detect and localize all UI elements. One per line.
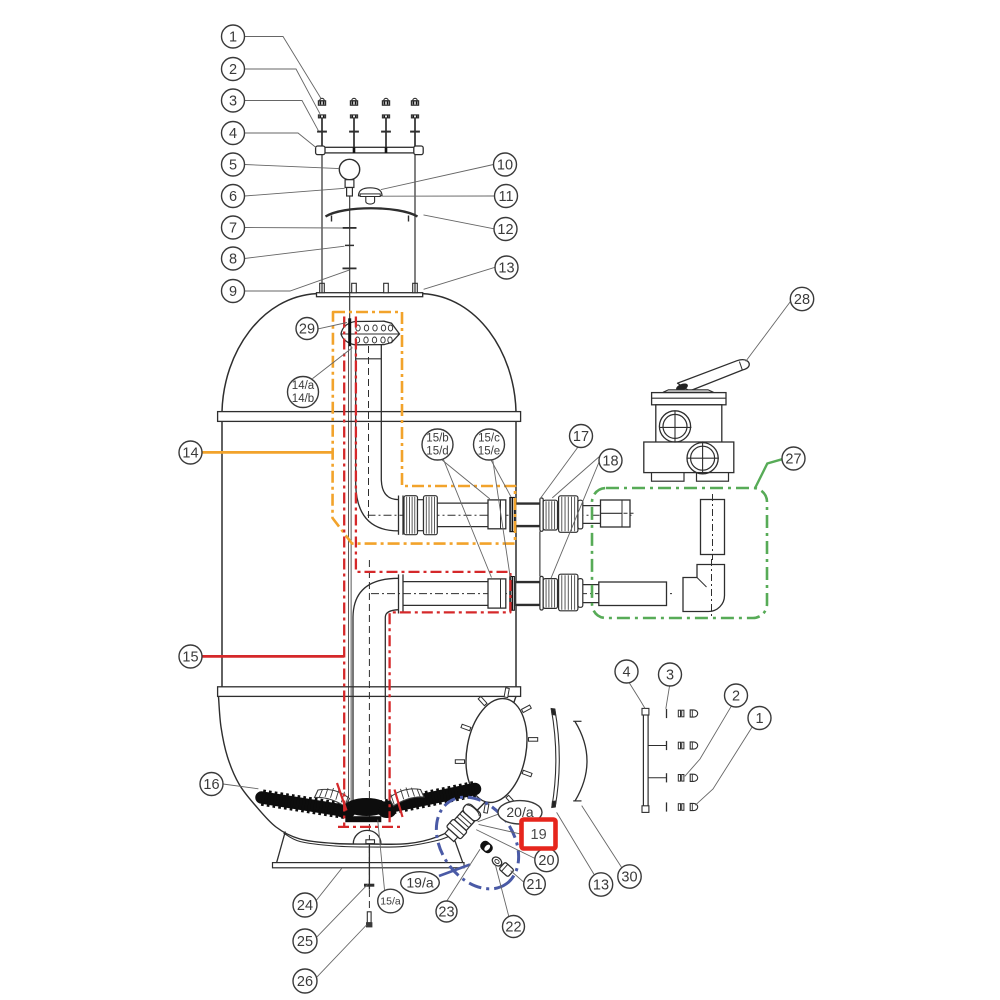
svg-text:16: 16 xyxy=(203,777,219,793)
svg-text:15/b: 15/b xyxy=(426,432,448,444)
svg-text:26: 26 xyxy=(297,974,313,990)
svg-text:18: 18 xyxy=(602,454,618,470)
svg-text:30: 30 xyxy=(621,870,637,886)
svg-text:8: 8 xyxy=(229,252,237,268)
svg-text:28: 28 xyxy=(794,292,810,308)
svg-text:10: 10 xyxy=(497,158,513,174)
svg-text:27: 27 xyxy=(785,452,801,468)
svg-text:2: 2 xyxy=(229,62,237,78)
svg-text:4: 4 xyxy=(622,665,630,681)
svg-text:1: 1 xyxy=(229,30,237,46)
svg-text:14/b: 14/b xyxy=(292,393,314,405)
svg-text:7: 7 xyxy=(229,221,237,237)
svg-text:4: 4 xyxy=(229,126,237,142)
svg-text:14/a: 14/a xyxy=(292,380,315,392)
svg-text:20: 20 xyxy=(538,853,554,869)
svg-text:9: 9 xyxy=(229,284,237,300)
svg-text:15: 15 xyxy=(182,650,198,666)
svg-text:2: 2 xyxy=(732,689,740,705)
svg-text:21: 21 xyxy=(526,877,542,893)
svg-text:19: 19 xyxy=(531,827,547,843)
svg-text:11: 11 xyxy=(498,189,513,205)
svg-text:22: 22 xyxy=(505,920,521,936)
svg-text:17: 17 xyxy=(573,429,589,445)
svg-text:1: 1 xyxy=(755,711,763,727)
svg-text:29: 29 xyxy=(299,322,315,338)
svg-text:24: 24 xyxy=(297,898,313,914)
svg-text:12: 12 xyxy=(497,222,513,238)
svg-text:6: 6 xyxy=(229,189,237,205)
svg-text:23: 23 xyxy=(438,905,454,921)
svg-text:15/e: 15/e xyxy=(478,445,500,457)
svg-text:15/a: 15/a xyxy=(380,896,401,908)
svg-text:19/a: 19/a xyxy=(406,874,433,890)
svg-text:15/d: 15/d xyxy=(426,445,448,457)
svg-text:3: 3 xyxy=(229,94,237,110)
svg-text:15/c: 15/c xyxy=(478,432,500,444)
svg-text:25: 25 xyxy=(297,934,313,950)
svg-text:13: 13 xyxy=(593,878,609,894)
svg-text:3: 3 xyxy=(666,668,674,684)
svg-text:13: 13 xyxy=(498,261,514,277)
svg-text:5: 5 xyxy=(229,158,237,174)
svg-text:14: 14 xyxy=(182,446,198,462)
